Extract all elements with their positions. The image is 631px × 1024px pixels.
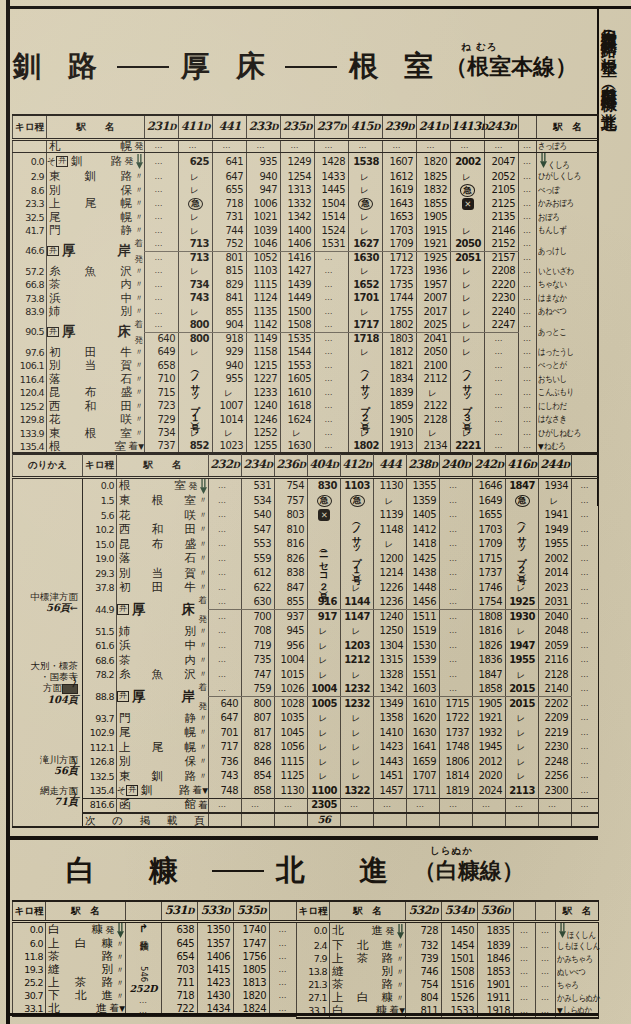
time-cell: 1115 [275,755,308,770]
time-cell: 1357 [198,938,234,951]
dots-cell: … [572,726,599,741]
express-mark-icon: 急 [317,495,332,508]
time-cell: 754 [406,979,442,992]
time-cell: … [315,386,349,400]
time-cell: 2128 [417,413,451,427]
train-number-header: 412D [341,453,374,477]
train-number-header: 415D [349,115,383,139]
time-cell: 708 [242,624,275,639]
time-cell: レ [451,332,485,346]
kilo-cell: 8.6 [13,184,47,198]
time-cell: 1709 [473,537,506,552]
dots-header [536,901,556,921]
terminal-arrow-icon: ▼ [119,1005,125,1013]
time-cell: 1200 [374,552,407,567]
time-cell: 1755 [383,305,417,319]
time-cell: … [209,477,242,494]
pass-mark: レ [349,348,379,357]
time-cell: ✕ [308,508,341,523]
time-cell: … [145,197,179,211]
train-number-header: 234D [242,453,275,477]
kilo-cell: 51.5 [83,624,117,639]
station-cell: 弁厚岸着発 [117,682,209,711]
time-cell: レ [213,427,247,441]
kana-cell: くしろ [537,153,599,171]
time-cell: 807 [242,711,275,726]
time-cell: 1456 [407,595,440,610]
dots-cell: … [519,251,537,265]
station-cell: 別当賀〃 [47,359,145,373]
time-cell: 2051 [451,251,485,265]
dots-cell: … [519,224,537,238]
time-cell: レ [451,292,485,306]
dots-cell: … [514,940,536,953]
timetable-up-nemuro-kushiro: のりかえキロ程駅 名232D234D236D404D412D444238D240… [12,452,598,828]
train-number-header: 243D [485,115,519,139]
table-row: 1.5東根室〃…534757急急レ1359…1649急レ… [13,494,599,509]
time-cell: 1021 [247,211,281,225]
time-cell: 1805 [234,964,270,977]
dots-cell: … [514,966,536,979]
time-cell: レ [451,319,485,333]
time-cell: 1748 [440,740,473,755]
time-cell: … [209,581,242,596]
pass-mark: レ [341,772,370,781]
pass-mark: レ [506,758,535,767]
time-cell: （ニセコ２号） [308,537,341,552]
time-cell: … [145,153,179,171]
kilo-cell: 41.7 [13,224,47,238]
train-number-header: 404D [308,453,341,477]
time-cell: レ [281,427,315,441]
time-cell: （ノサップ２号） [506,508,539,523]
time-cell: 1915 [417,224,451,238]
time-cell: … [440,477,473,494]
table-row: 66.8茶内〃…73482911151439…165217351957レ2220… [13,278,599,292]
time-cell: … [209,624,242,639]
time-cell: 2014 [539,566,572,581]
table-row: 78.2糸魚沢〃…7471015レレ13281551…1847レ2128… [13,668,599,683]
time-cell: 855 [213,305,247,319]
table-row: 132.5東釧路〃7438541125レレ1451170718142020レ22… [13,769,599,784]
time-cell: … [209,523,242,538]
section-title-shiranuka: 白 糠 北 進 しらぬか（白糠線） [12,845,578,897]
time-cell: 1847 [506,477,539,494]
table-row: 2.9東釧路〃…レ64794012541433レ16121825レ2052…ひが… [13,170,599,184]
time-cell: … [407,798,440,813]
kilo-cell: 29.3 [83,566,117,581]
kilo-cell: 93.7 [83,711,117,726]
time-cell: 553 [242,537,275,552]
table-row: 120.4昆布盛〃715レ12331610…1839レ……こんぶもり [13,386,599,400]
ekiben-mark-icon: 弁 [126,785,138,796]
time-cell: 2146 [485,224,519,238]
station-cell: 茶内〃 [47,278,145,292]
time-cell: 723 [145,400,179,414]
time-cell: … [485,386,519,400]
time-cell: レ [179,346,213,360]
dots-cell: … [572,668,599,683]
time-cell: 2116 [539,653,572,668]
kilo-cell: 116.4 [13,373,47,387]
time-cell: 713 [179,238,213,252]
train-number-header: 411D [179,115,213,139]
transfer-note: 大別・標茶・国泰寺方面104頁〉 [16,660,78,705]
time-cell: … [440,595,473,610]
train-name-bracket: （ノサップ２号） [517,509,527,578]
time-cell: レ [308,653,341,668]
kana-cell: あっけし [537,238,599,265]
time-cell [209,813,242,828]
kilo-cell: 7.9 [297,953,330,966]
time-cell: 急 [506,494,539,509]
time-cell: … [209,552,242,567]
kana-cell: べっぽ [537,184,599,198]
kana-name-header: 駅 名 [556,901,599,921]
pass-mark: レ [179,267,209,276]
time-cell [539,813,572,828]
time-cell [440,813,473,828]
time-cell: 654 [162,951,198,964]
time-cell: レ [179,427,213,441]
table-kushiro-to-nemuro: キロ程駅 名231D411D441233D235D237D415D239D241… [12,114,599,455]
dots-cell: … [519,305,537,319]
pass-mark: レ [451,173,481,182]
time-cell: … [209,668,242,683]
time-cell: … [440,653,473,668]
kilo-header: キロ程 [297,901,330,921]
time-cell: レ [341,624,374,639]
time-cell: 732 [406,940,442,953]
time-cell: 1100 [308,784,341,799]
time-cell: 1501 [442,953,478,966]
pass-mark: レ [341,671,370,680]
dots-cell: … [270,921,297,938]
pass-mark: レ [308,656,337,665]
time-cell: 1249 [281,153,315,171]
table-row: 札幌発………………………………さっぽろ [13,139,599,153]
time-cell: レ [506,624,539,639]
time-cell: … [145,265,179,279]
time-cell: … [485,346,519,360]
time-cell: 630 [242,595,275,610]
time-cell: 1747 [234,938,270,951]
time-cell: 1932 [473,726,506,741]
time-cell: 1451 [374,769,407,784]
time-cell: … [506,798,539,813]
kana-cell: かみおぼろ [537,197,599,211]
time-cell: 1955 [539,537,572,552]
pass-mark: レ [451,227,481,236]
station-cell: 落石〃 [47,373,145,387]
station-cell: 尾幌〃 [117,726,209,741]
time-cell: 2209 [539,711,572,726]
kilo-cell: 97.6 [13,346,47,360]
time-cell: … [374,798,407,813]
time-cell: 2157 [485,251,519,265]
table-row: 816.6函館着………2305…………………… [13,798,599,813]
time-cell: 815 [213,265,247,279]
station-cell: 弁厚岸着発 [47,238,145,265]
kilo-cell: 129.8 [13,413,47,427]
kilo-cell: 30.7 [13,990,46,1003]
train-number-header: 240D [440,453,473,477]
pass-mark: レ [179,348,209,357]
time-cell: 1004 [275,653,308,668]
time-cell: … [145,139,179,153]
time-cell: … [209,494,242,509]
dots-cell: … [519,373,537,387]
title-dash [285,66,337,69]
pass-mark: レ [506,714,535,723]
connection-header [126,901,162,921]
train-number-header: 242D [473,453,506,477]
time-cell: レ [349,427,383,441]
time-cell: 1304 [374,639,407,654]
time-cell: … [440,798,473,813]
time-cell: 1500 [281,305,315,319]
kilo-cell: 816.6 [83,798,117,813]
time-cell: 1821 [383,359,417,373]
time-cell: … [485,413,519,427]
time-cell: … [315,265,349,279]
pass-mark: レ [506,627,535,636]
time-cell: 2023 [539,581,572,596]
time-cell: 747 [242,668,275,683]
kilo-cell: 23.3 [13,197,47,211]
time-cell: （ノサップ１号） [179,359,213,373]
departure-arrow-icon [199,479,208,494]
time-cell: … [209,639,242,654]
departure-arrow-icon [116,923,125,938]
time-cell: レ [451,224,485,238]
time-cell: 1423 [374,740,407,755]
time-cell: 1443 [374,755,407,770]
kilo-cell: 90.5 [13,319,47,346]
time-cell: 1740 [234,921,270,938]
pass-mark: レ [341,758,370,767]
station-cell: そ弁釧路着▼ [117,784,209,799]
pass-mark: レ [341,627,370,636]
station-mark: そ [47,157,56,166]
time-cell: … [440,668,473,683]
time-cell: … [145,238,179,252]
pass-mark: レ [451,267,481,276]
time-cell: 1439 [281,278,315,292]
pointer-chevron-icon: 〉 [71,758,84,769]
time-cell: 2041 [417,332,451,346]
kilo-cell: 0.0 [13,153,47,171]
time-cell: … [417,139,451,153]
dots-cell: … [519,278,537,292]
time-cell: 2017 [417,305,451,319]
time-cell: 1803 [383,332,417,346]
table-row: 37.8初田牛〃…622847レ12261448…1746レ2023… [13,581,599,596]
kilo-cell: 0.0 [13,921,46,938]
time-cell: 1433 [315,170,349,184]
transfer-notes-cell: 中標津方面56頁←大別・標茶・国泰寺方面104頁〉滝川方面56頁〉網走方面71頁… [13,477,83,827]
time-cell: 854 [242,769,275,784]
time-cell: … [485,400,519,414]
dots-cell: … [572,711,599,726]
time-cell: 1358 [374,711,407,726]
time-cell: 2025 [417,319,451,333]
time-cell: 2050 [417,346,451,360]
table-row: 23.3上尾幌〃…急718100613321504急16431855✕2125…… [13,197,599,211]
time-cell: 1910 [383,427,417,441]
departure-arrow-icon [396,924,405,939]
dots-cell: … [519,139,537,153]
station-cell: 初田牛〃 [117,581,209,596]
time-cell: レ [308,740,341,755]
pass-mark: レ [417,389,447,398]
time-cell: 1457 [374,784,407,799]
train-number-header: 534D [442,901,478,921]
time-cell: 1707 [407,769,440,784]
time-cell: … [485,427,519,441]
dots-cell: … [572,798,599,813]
section-title-nemuro: 釧 路 厚 床 根 室 ね むろ（根室本線） [12,36,578,98]
table-row: 8.6別保〃…レ65594713131445レ16191832急2105…べっぽ [13,184,599,198]
time-cell: 649 [145,346,179,360]
table-row: 102.9尾幌〃7018171045レレ1410163017371932レ221… [13,726,599,741]
time-cell: 800 [242,697,275,712]
ekiben-mark-icon: 弁 [117,604,129,615]
time-cell: 2220 [485,278,519,292]
time-cell: レ [179,170,213,184]
pass-mark: レ [451,281,481,290]
time-cell: 1028 [275,697,308,712]
time-cell: 1240 [374,610,407,625]
time-cell: 1254 [281,170,315,184]
dots-cell: … [572,769,599,784]
dots-cell: … [270,938,297,951]
top-rule [6,6,631,9]
time-cell: 2002 [539,552,572,567]
dots-cell: … [536,966,556,979]
table-nemuro-to-kushiro: のりかえキロ程駅 名232D234D236D404D412D444238D240… [12,452,599,828]
time-cell: レ [308,624,341,639]
pass-mark: レ [308,627,337,636]
station-cell: 東釧路〃 [117,769,209,784]
title-dash [117,66,169,69]
table-row: 135.4そ弁釧路着▼74885811301100132214571711181… [13,784,599,799]
time-cell: 1941 [539,508,572,523]
time-cell: 1619 [383,184,417,198]
pass-mark: レ [374,540,403,549]
train-number-header: 241D [417,115,451,139]
time-cell: 1349 [374,697,407,712]
table-row: 97.6初田牛〃649レ92911581544…レ18122050レ……はったう… [13,346,599,360]
time-cell: 1630 [407,726,440,741]
time-cell: レ [506,726,539,741]
time-cell: … [315,346,349,360]
time-cell: 1240 [247,400,281,414]
station-cell: 函館着 [117,798,209,813]
table-row: 0.0北進発72814501835……ほくしん [297,921,599,940]
dots-cell: … [572,639,599,654]
time-cell: … [315,305,349,319]
time-cell: … [145,292,179,306]
time-cell: 1130 [275,784,308,799]
pass-mark: レ [179,213,209,222]
time-cell: 1715 [440,697,473,712]
time-cell: 1905 [473,697,506,712]
time-cell: 1627 [349,238,383,252]
time-cell: … [213,139,247,153]
pass-mark: レ [308,714,337,723]
express-mark-icon: 急 [460,184,475,197]
time-cell: … [209,682,242,697]
time-cell: … [485,139,519,153]
time-cell: 2002 [451,153,485,171]
station-cell: 花咲〃 [47,413,145,427]
time-cell: 1149 [247,332,281,346]
time-cell: レ [308,726,341,741]
time-cell: 1618 [281,400,315,414]
time-cell: 1624 [281,413,315,427]
time-cell: 1252 [247,427,281,441]
time-cell: 800 [179,319,213,333]
time-cell: 1410 [374,726,407,741]
time-cell: … [440,682,473,697]
kilo-cell: 25.2 [13,977,46,990]
time-cell: 1832 [417,184,451,198]
time-cell: レ [349,170,383,184]
time-cell: 1103 [247,265,281,279]
kilo-cell: 19.0 [83,552,117,567]
time-cell: 1847 [473,668,506,683]
time-cell: 1839 [383,386,417,400]
kana-cell: ぬいべつ [556,966,599,979]
time-cell: 759 [242,682,275,697]
pass-mark: レ [341,714,370,723]
dots-cell: … [572,740,599,755]
dots-cell: … [514,953,536,966]
dots-cell: … [536,992,556,1005]
time-cell: 734 [145,427,179,441]
station-cell: 昆布盛〃 [47,386,145,400]
time-cell: 830 [308,477,341,494]
time-cell [374,813,407,828]
dots-cell: … [572,566,599,581]
dots-cell: … [519,292,537,306]
time-cell: 1014 [213,413,247,427]
time-cell [473,813,506,828]
time-cell: 1925 [506,595,539,610]
time-cell: レ [349,265,383,279]
time-cell: 655 [213,184,247,198]
time-cell: レ [341,726,374,741]
time-cell: 1936 [417,265,451,279]
pass-mark: レ [539,497,568,506]
station-cell: 西和田〃 [47,400,145,414]
time-cell: 1359 [407,494,440,509]
dots-cell: … [572,581,599,596]
time-cell: 1405 [407,508,440,523]
time-cell: 1328 [374,668,407,683]
station-cell: 弁厚床着発 [47,319,145,346]
ekiben-mark-icon: 弁 [56,156,68,167]
time-cell: 1322 [341,784,374,799]
time-cell: 2012 [473,755,506,770]
kilo-cell: 27.1 [297,992,330,1005]
time-cell: 534 [242,494,275,509]
time-cell: 1901 [478,979,514,992]
kilo-cell: 68.6 [83,653,117,668]
kana-cell: にしわだ [537,400,599,414]
time-cell: 711 [162,977,198,990]
